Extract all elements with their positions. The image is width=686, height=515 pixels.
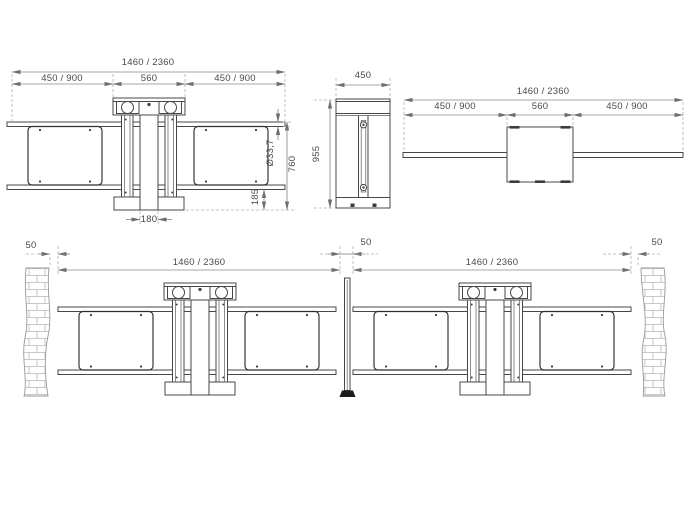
dim-plan-right-wing: 450 / 900 [606, 102, 647, 112]
installation-view [24, 246, 666, 397]
plan-view [403, 100, 683, 183]
dim-side-depth: 450 [355, 71, 371, 81]
side-elevation-view [314, 78, 390, 208]
dim-install-left-wall-gap: 50 [26, 241, 37, 251]
dim-plan-overall: 1460 / 2360 [517, 87, 569, 97]
dim-front-rail-height: 760 [288, 156, 298, 172]
dim-plan-head-width: 560 [532, 102, 548, 112]
gate-unit-front [7, 98, 285, 210]
dim-install-center-post-gap: 50 [361, 238, 372, 248]
dim-plan-left-wing: 450 / 900 [434, 102, 475, 112]
dim-front-left-wing: 450 / 900 [41, 74, 82, 84]
center-post [340, 278, 356, 397]
gate-unit-left [58, 283, 336, 395]
dim-front-post-width: 180 [141, 215, 157, 225]
installation-dimension-lines [26, 246, 662, 276]
dim-install-right-wall-gap: 50 [652, 238, 663, 248]
left-wall [24, 268, 50, 396]
drawing-svg [0, 0, 686, 515]
gate-unit-right [353, 283, 631, 395]
dim-front-tube-diameter: Ø33,7 [266, 140, 276, 167]
dim-side-height: 955 [312, 146, 322, 162]
dim-install-right-overall: 1460 / 2360 [466, 258, 518, 268]
dim-front-right-wing: 450 / 900 [214, 74, 255, 84]
dim-front-overall: 1460 / 2360 [122, 58, 174, 68]
right-wall [641, 268, 666, 396]
dim-front-bottom-rail: 185 [251, 189, 261, 205]
dim-front-head-width: 560 [141, 74, 157, 84]
dim-install-left-overall: 1460 / 2360 [173, 258, 225, 268]
technical-drawing-canvas: 1460 / 2360 450 / 900 560 450 / 900 Ø33,… [0, 0, 686, 515]
